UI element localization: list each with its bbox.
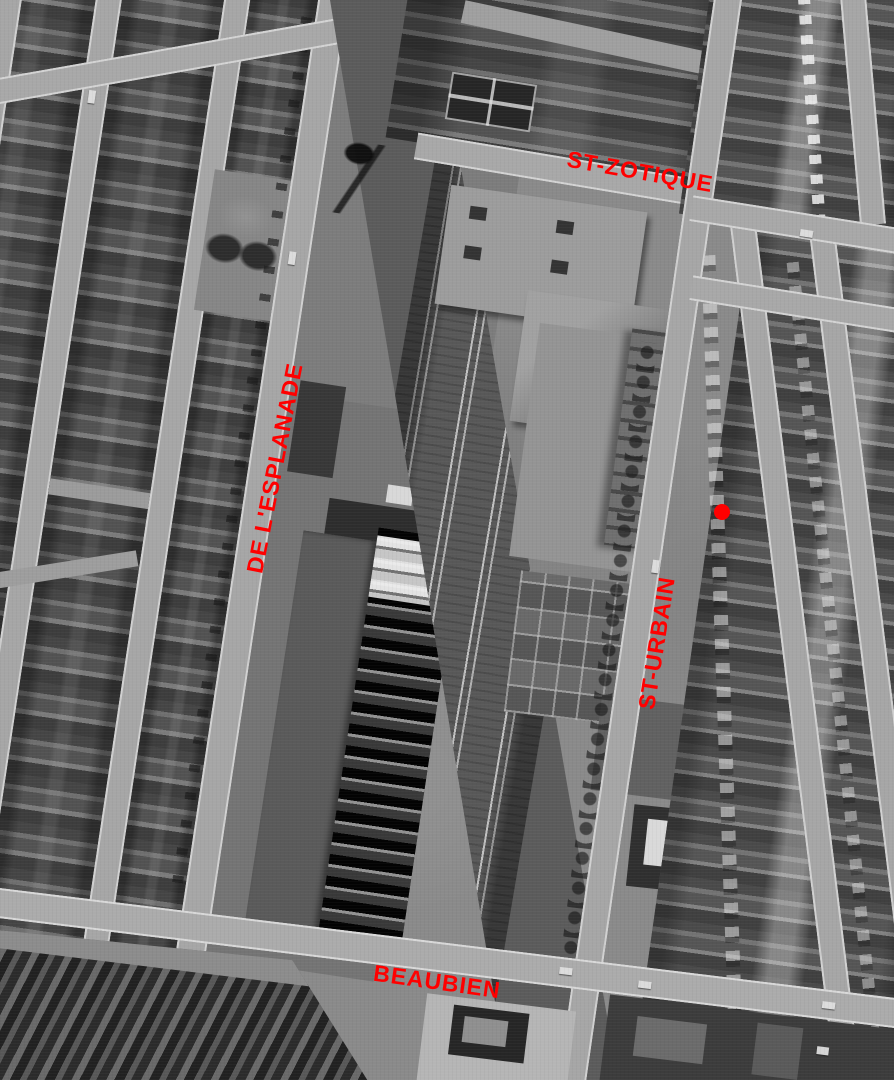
aerial-photo: ST-ZOTIQUE DE L'ESPLANADE ST-URBAIN BEAU…	[0, 0, 894, 1080]
car	[822, 1001, 836, 1010]
car	[559, 967, 573, 976]
roof-vent	[550, 260, 569, 275]
location-marker-dot	[714, 504, 730, 520]
small-light-roof	[386, 484, 414, 506]
roof	[751, 1023, 803, 1080]
car	[638, 981, 652, 990]
roof-vent	[556, 220, 575, 235]
roof	[633, 1016, 707, 1064]
car	[816, 1046, 829, 1055]
roof-vent	[469, 206, 488, 221]
roof-vent	[463, 245, 482, 260]
dark-building	[448, 1005, 530, 1064]
building-court	[462, 1016, 509, 1047]
